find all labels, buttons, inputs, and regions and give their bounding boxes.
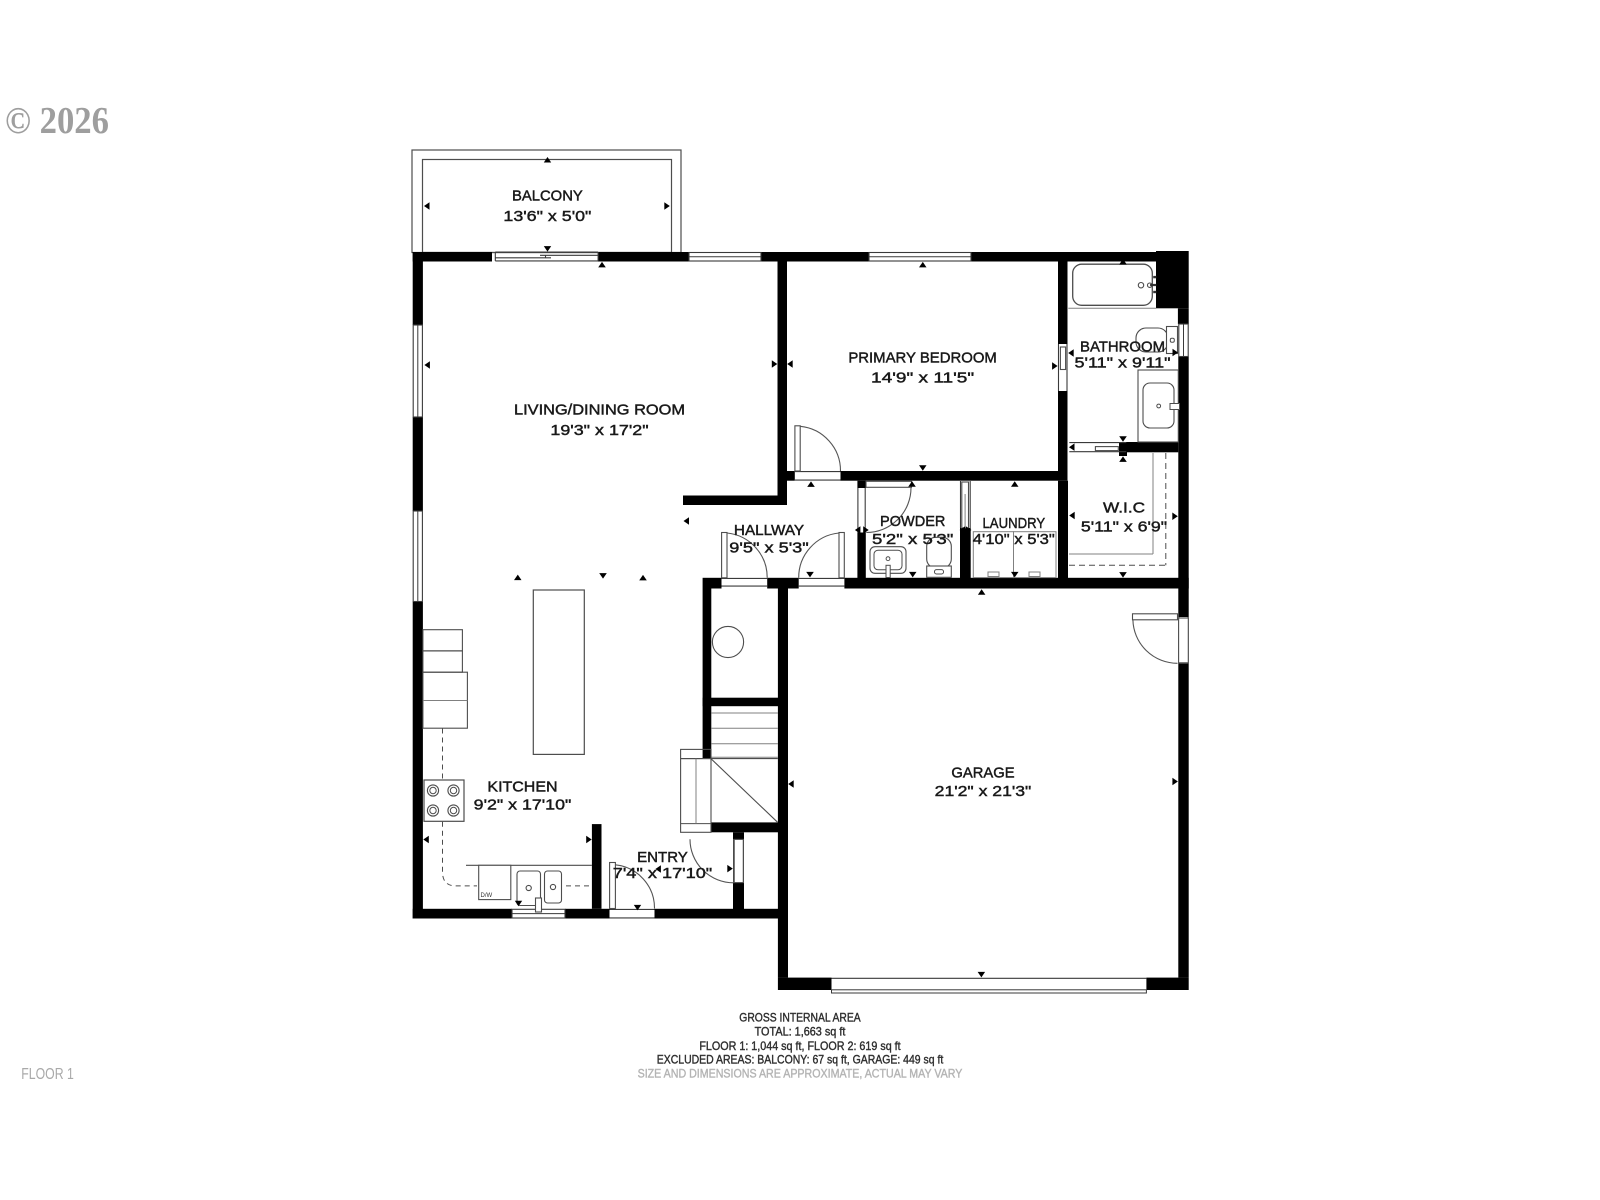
svg-text:21'2" x 21'3": 21'2" x 21'3" [935, 783, 1032, 800]
svg-text:9'2" x 17'10": 9'2" x 17'10" [474, 797, 572, 814]
svg-text:5'11" x 9'11": 5'11" x 9'11" [1075, 355, 1171, 372]
svg-text:GARAGE: GARAGE [951, 765, 1014, 782]
svg-text:BALCONY: BALCONY [512, 188, 583, 205]
svg-text:LAUNDRY: LAUNDRY [983, 515, 1046, 532]
svg-text:© 2026: © 2026 [5, 100, 109, 142]
svg-text:9'5" x 5'3": 9'5" x 5'3" [729, 540, 809, 557]
svg-text:HALLWAY: HALLWAY [734, 522, 804, 539]
svg-text:POWDER: POWDER [880, 513, 945, 530]
svg-text:5'11" x 6'9": 5'11" x 6'9" [1081, 518, 1167, 535]
svg-text:KITCHEN: KITCHEN [487, 778, 557, 795]
svg-text:13'6" x 5'0": 13'6" x 5'0" [503, 208, 591, 225]
svg-text:7'4" x 17'10": 7'4" x 17'10" [613, 865, 713, 882]
svg-text:5'2" x 5'3": 5'2" x 5'3" [872, 531, 953, 548]
svg-text:BATHROOM: BATHROOM [1080, 339, 1165, 356]
svg-text:FLOOR 1: FLOOR 1 [21, 1066, 74, 1083]
svg-text:W.I.C: W.I.C [1103, 500, 1145, 517]
svg-text:LIVING/DINING ROOM: LIVING/DINING ROOM [514, 402, 685, 419]
svg-text:TOTAL: 1,663 sq ft: TOTAL: 1,663 sq ft [755, 1025, 846, 1039]
svg-text:14'9" x 11'5": 14'9" x 11'5" [871, 370, 974, 387]
svg-text:GROSS INTERNAL AREA: GROSS INTERNAL AREA [739, 1011, 861, 1025]
svg-text:D/W: D/W [481, 893, 493, 899]
svg-text:SIZE AND DIMENSIONS ARE APPROX: SIZE AND DIMENSIONS ARE APPROXIMATE, ACT… [638, 1066, 963, 1080]
svg-text:19'3" x 17'2": 19'3" x 17'2" [550, 422, 648, 439]
svg-text:4'10" x 5'3": 4'10" x 5'3" [973, 531, 1055, 548]
svg-text:PRIMARY BEDROOM: PRIMARY BEDROOM [848, 349, 997, 366]
svg-text:ENTRY: ENTRY [637, 849, 688, 866]
svg-text:EXCLUDED AREAS: BALCONY: 67 sq: EXCLUDED AREAS: BALCONY: 67 sq ft, GARAG… [657, 1053, 944, 1067]
svg-text:FLOOR 1: 1,044 sq ft, FLOOR 2:: FLOOR 1: 1,044 sq ft, FLOOR 2: 619 sq ft [699, 1039, 901, 1053]
